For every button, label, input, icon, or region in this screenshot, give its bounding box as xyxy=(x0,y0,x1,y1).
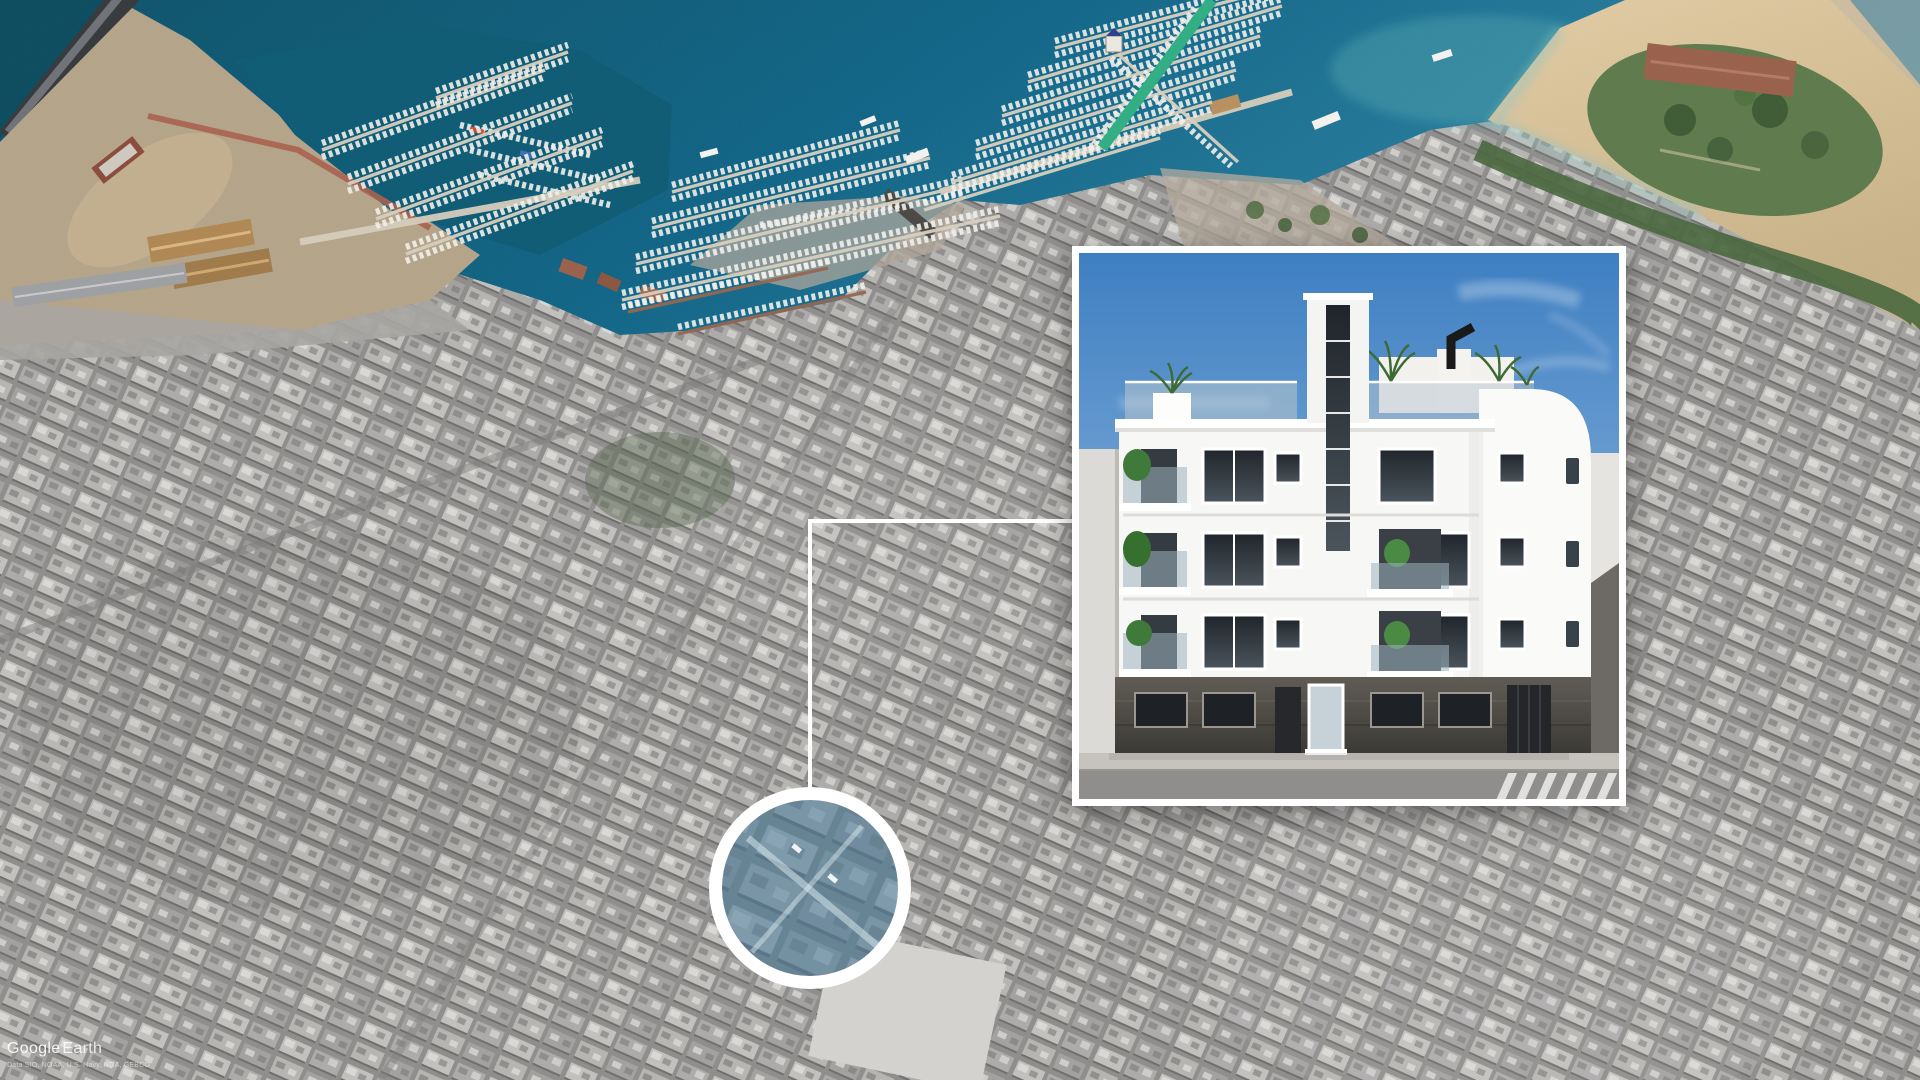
neighbor-left-wall xyxy=(1079,449,1119,753)
ground-window xyxy=(1439,693,1491,727)
ground-window xyxy=(1135,693,1187,727)
cast-shadow xyxy=(1591,563,1619,753)
location-highlight-circle xyxy=(716,794,905,983)
google-earth-watermark: GoogleEarth Data SIO, NOAA, U.S. Navy, N… xyxy=(7,1040,150,1069)
watermark-attribution: Data SIO, NOAA, U.S. Navy, NGA, GEBCO xyxy=(7,1062,150,1069)
left-balconies xyxy=(1119,449,1191,677)
ground-floor xyxy=(1115,677,1591,753)
roof-slab xyxy=(1115,419,1495,428)
roof-slab-shadow xyxy=(1115,428,1495,432)
aerial-map xyxy=(0,0,1920,1080)
ground-window xyxy=(1371,693,1423,727)
entrance-door xyxy=(1309,685,1343,753)
building-render-inset xyxy=(1072,246,1626,806)
facade-shading xyxy=(1469,432,1483,677)
balcony-plant xyxy=(1123,531,1151,567)
balcony-plant xyxy=(1123,449,1151,481)
watermark-brand: GoogleEarth xyxy=(7,1040,150,1058)
balcony-plant xyxy=(1126,620,1152,646)
service-door xyxy=(1275,687,1301,753)
photo-grain xyxy=(0,0,1920,1080)
building-render xyxy=(1079,253,1619,799)
watermark-earth: Earth xyxy=(62,1040,102,1057)
watermark-google: Google xyxy=(7,1040,60,1057)
aerial-map-stage: GoogleEarth Data SIO, NOAA, U.S. Navy, N… xyxy=(0,0,1920,1080)
ground-window xyxy=(1203,693,1255,727)
asphalt xyxy=(1079,771,1619,799)
street xyxy=(1079,749,1619,799)
